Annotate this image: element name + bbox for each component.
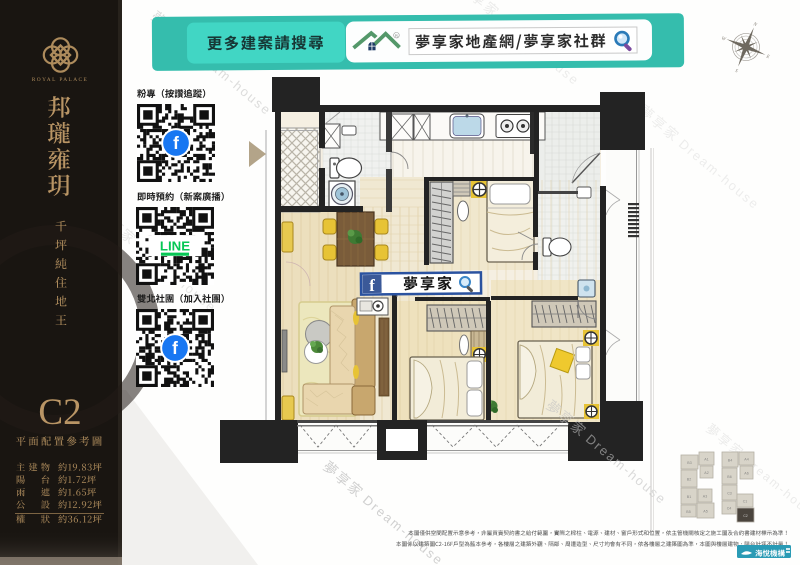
svg-text:B3: B3 — [687, 461, 691, 465]
svg-text:A1: A1 — [704, 458, 708, 462]
svg-text:A5: A5 — [703, 510, 707, 514]
svg-text:ROYAL PALACE: ROYAL PALACE — [32, 77, 88, 83]
svg-text:B4: B4 — [728, 459, 732, 463]
svg-text:A6: A6 — [744, 472, 748, 476]
svg-text:A4: A4 — [744, 458, 748, 462]
svg-text:LINE: LINE — [160, 238, 190, 253]
svg-text:B1: B1 — [687, 495, 691, 499]
svg-text:C3: C3 — [727, 492, 732, 496]
svg-text:C1: C1 — [743, 500, 748, 504]
svg-text:B5: B5 — [686, 510, 690, 514]
svg-text:C4: C4 — [727, 507, 732, 511]
svg-text:B2: B2 — [687, 478, 691, 482]
svg-text:B6: B6 — [727, 475, 731, 479]
svg-text:A2: A2 — [704, 471, 708, 475]
svg-text:f: f — [173, 133, 179, 153]
svg-text:f: f — [369, 276, 375, 295]
svg-text:R: R — [395, 33, 398, 38]
svg-text:A3: A3 — [703, 495, 707, 499]
svg-text:f: f — [172, 338, 178, 358]
svg-text:C2: C2 — [38, 392, 81, 433]
svg-text:C2: C2 — [743, 514, 748, 518]
